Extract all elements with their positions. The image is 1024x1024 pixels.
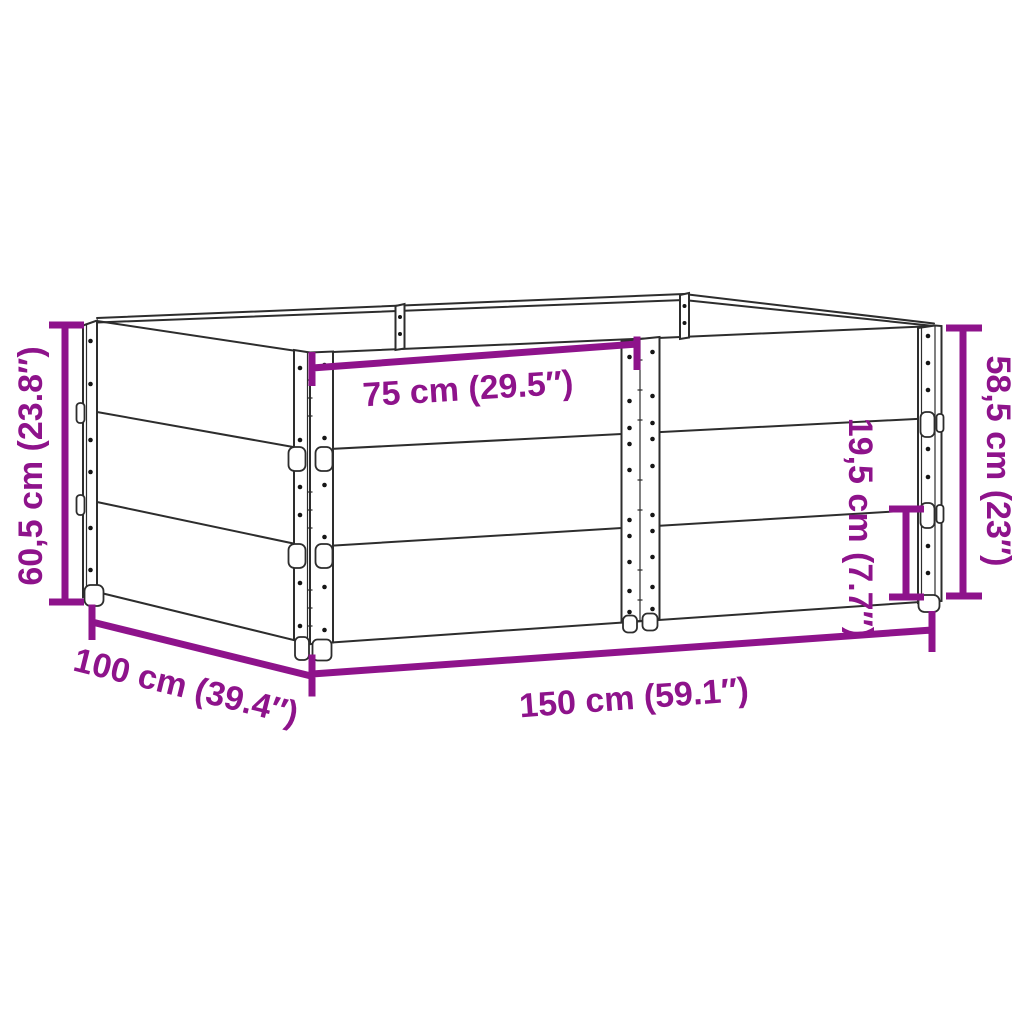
dim-label-height-right: 58,5 cm (23″) <box>979 356 1017 567</box>
dim-label-length: 150 cm (59.1″) <box>518 671 750 726</box>
back-middle-batten <box>396 304 405 350</box>
foot-front-left-a <box>295 637 309 660</box>
front-left-corner-post <box>289 350 334 661</box>
foot-batten-b <box>643 614 658 631</box>
dim-label-collar-height: 19,5 cm (7.7″) <box>841 418 879 638</box>
dimension-top-half-width: 75 cm (29.5″) <box>312 337 637 415</box>
back-right-corner-post <box>680 293 689 339</box>
dimension-total-height-left: 60,5 cm (23.8″) <box>12 325 84 602</box>
dimension-diagram: 60,5 cm (23.8″) 58,5 cm (23″) 19,5 cm (7… <box>0 0 1024 1024</box>
dim-label-total-height: 60,5 cm (23.8″) <box>12 346 50 585</box>
back-left-corner-post <box>77 321 104 607</box>
dimension-front-length: 150 cm (59.1″) <box>312 611 932 725</box>
dimension-height-right: 58,5 cm (23″) <box>946 328 1017 596</box>
foot-batten-a <box>623 616 637 633</box>
dim-label-depth: 100 cm (39.4″) <box>70 641 302 733</box>
front-middle-batten <box>622 337 660 633</box>
dimension-side-depth: 100 cm (39.4″) <box>70 605 311 734</box>
wall-edges <box>97 294 935 644</box>
front-right-corner-post <box>918 326 944 613</box>
foot-back-left <box>85 585 104 606</box>
diagram-canvas: 60,5 cm (23.8″) 58,5 cm (23″) 19,5 cm (7… <box>0 0 1024 1024</box>
dim-label-half-width: 75 cm (29.5″) <box>362 364 575 415</box>
pallet-collar-drawing <box>77 293 944 661</box>
